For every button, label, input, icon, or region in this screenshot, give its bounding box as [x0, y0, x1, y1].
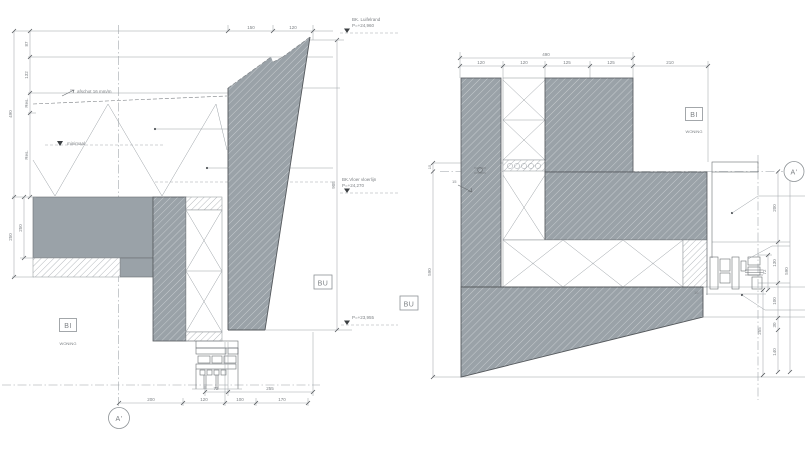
dim-label: 100 [772, 297, 777, 305]
slope-label: afschot 16 mm/m [77, 89, 112, 94]
right-floor-slab [545, 172, 707, 240]
dim-label: 250 [18, 224, 23, 232]
zone-code: BI [64, 323, 72, 330]
dim-label: 87 [24, 41, 29, 47]
dim-label: 120 [520, 60, 528, 65]
right-top-dimensions: 490 120 120 125 125 210 [458, 52, 710, 68]
dim-label: 130 [772, 259, 777, 267]
right-parapet-wedge [461, 287, 703, 377]
slope-label: 15 [452, 179, 457, 184]
dim-label: 250 [8, 233, 13, 241]
minimal-label: minimaal [67, 141, 85, 146]
zone-label: WONING [60, 341, 77, 346]
left-window-frame [153, 341, 242, 389]
dim-label: 72 [213, 386, 219, 391]
left-zone-outside: BU [314, 275, 332, 289]
right-grid-bubble: A' [784, 162, 804, 182]
right-wall-column-a [461, 78, 501, 287]
right-left-dimension: 15 590 [427, 161, 435, 379]
left-section-detail: 150 120 87 132 Res. Res. 490 250 250 905 [2, 17, 400, 429]
dim-label: 132 [24, 71, 29, 79]
right-insulation-band [503, 240, 707, 287]
left-height-dimensions: 87 132 Res. Res. 490 250 250 [8, 29, 36, 279]
level-marker-icon [344, 321, 350, 326]
dim-label: 490 [8, 110, 13, 118]
right-cavity-insulation [503, 78, 545, 240]
right-zone-outside: BU [400, 296, 418, 310]
left-material-leaders [154, 128, 208, 169]
level-value: P=+24,960 [352, 23, 375, 28]
left-floor-slab [33, 197, 153, 277]
right-material-leaders [731, 196, 805, 310]
dim-label: 200 [772, 204, 777, 212]
dim-label: 125 [563, 60, 571, 65]
dim-label: 72 [762, 269, 767, 275]
dim-label: 490 [542, 52, 550, 57]
edge-dim-label: 16 [694, 290, 699, 295]
level-value: P=+23,955 [352, 315, 375, 320]
level-value: P=+24,270 [342, 183, 365, 188]
dim-label: 590 [427, 268, 432, 276]
dim-label: 150 [247, 25, 255, 30]
left-level-low: P=+23,955 [341, 315, 398, 325]
left-level-top: BK. Luifelrand P=+24,960 [340, 17, 400, 33]
left-parapet-wedge [228, 37, 310, 330]
grid-bubble-label: A' [790, 170, 797, 177]
left-zone-inside: BI WONING [60, 319, 77, 347]
right-height-dimensions: 72 255 200 130 100 30 140 590 [757, 170, 792, 378]
dim-label: 30 [772, 322, 777, 328]
zone-code: BI [690, 112, 698, 119]
zone-code: BU [318, 281, 329, 288]
dim-label: 255 [757, 327, 762, 335]
dim-label: 590 [784, 267, 789, 275]
dim-label: 120 [477, 60, 485, 65]
dim-label: 200 [147, 397, 155, 402]
dim-label: Res. [24, 150, 29, 159]
dim-label: 15 [427, 164, 432, 169]
dim-label: 125 [607, 60, 615, 65]
zone-code: BU [404, 302, 415, 309]
dim-label: 170 [278, 397, 286, 402]
dim-label: 905 [331, 181, 336, 189]
dim-label: 120 [200, 397, 208, 402]
level-marker-icon [344, 189, 350, 194]
left-masonry-pier [153, 197, 186, 341]
dim-label: 140 [772, 348, 777, 356]
level-name: BK. Luifelrand [352, 17, 381, 22]
zone-label: WONING [686, 129, 703, 134]
level-marker-icon [344, 29, 350, 34]
left-top-dimensions: 150 120 [226, 25, 315, 40]
dim-label: 120 [289, 25, 297, 30]
left-slope-annotation: afschot 16 mm/m [62, 89, 112, 96]
dim-label: 255 [266, 386, 274, 391]
grid-bubble-label: A' [115, 416, 122, 423]
drawing-sheet: 150 120 87 132 Res. Res. 490 250 250 905 [0, 0, 805, 453]
right-section-detail: 15 16 490 120 120 125 125 210 15 590 [400, 52, 805, 400]
dim-label: Res. [24, 98, 29, 107]
dim-label: 100 [236, 397, 244, 402]
left-level-floor: BK.Vloer vloerlijn P=+24,270 [340, 177, 398, 193]
section-details-svg: 150 120 87 132 Res. Res. 490 250 250 905 [0, 0, 805, 453]
left-cavity-insulation [186, 197, 222, 341]
dim-label: 210 [666, 60, 674, 65]
right-window-frame [706, 257, 766, 294]
right-zone-inside: BI WONING [686, 108, 703, 135]
right-wall-column-b [545, 78, 633, 172]
level-name: BK.Vloer vloerlijn [342, 177, 377, 182]
left-grid-bubble: A' [109, 408, 130, 429]
